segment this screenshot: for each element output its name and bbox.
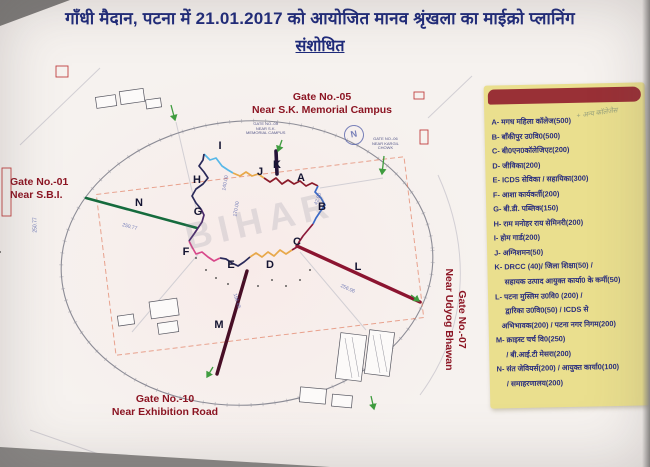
map-letter-marker: N [132, 197, 146, 209]
tiny-gate-label: GATE NO.-06 NEAR KARGIL CHOWK [372, 137, 399, 151]
legend-item: / समाहरणालय(200) [497, 374, 647, 392]
map-letter-marker: H [190, 174, 204, 186]
map-letter-marker: K [270, 159, 284, 171]
map-letter-marker: G [191, 206, 205, 218]
map-letter-marker: I [213, 140, 227, 152]
segment-A [264, 178, 318, 186]
photo-of-document: BIHAR N Gate No.-05 Near S.K. Memorial C… [0, 0, 650, 467]
segment-D [250, 250, 292, 257]
legend-box: + अन्य कॉलेजेस A- मगध महिला कॉलेज(500)B-… [484, 82, 650, 408]
dimension-text: 250.77 [33, 217, 39, 232]
legend-header-bar [488, 86, 641, 104]
map-letter-marker: C [290, 236, 304, 248]
page-subtitle: संशोधित [0, 34, 640, 56]
gate-01-label: Gate No.-01 Near S.B.I. [10, 176, 100, 201]
map-letter-marker: E [224, 259, 238, 271]
map-letter-marker: F [179, 246, 193, 258]
gate-10-label: Gate No.-10 Near Exhibition Road [80, 393, 250, 418]
gate-07-label: Gate No.-07 Near Udyog Bhawan [443, 252, 468, 387]
map-letter-marker: L [351, 261, 365, 273]
gate-05-label: Gate No.-05 Near S.K. Memorial Campus [227, 91, 417, 116]
map-letter-marker: J [253, 166, 267, 178]
segment-I [204, 154, 233, 173]
tiny-gate-label: GATE NO.-05 NEAR S.K. MEMORIAL CAMPUS [246, 122, 285, 136]
map-letter-marker: A [294, 172, 308, 184]
map-letter-marker: D [263, 259, 277, 271]
map-letter-marker: M [212, 319, 226, 331]
legend-items: A- मगध महिला कॉलेज(500)B- बाँकीपुर उ0वि0… [491, 112, 647, 391]
page-title: गाँधी मैदान, पटना में 21.01.2017 को आयोज… [0, 6, 640, 29]
line-L-maroon [297, 246, 420, 302]
photo-edge-right [642, 0, 650, 467]
